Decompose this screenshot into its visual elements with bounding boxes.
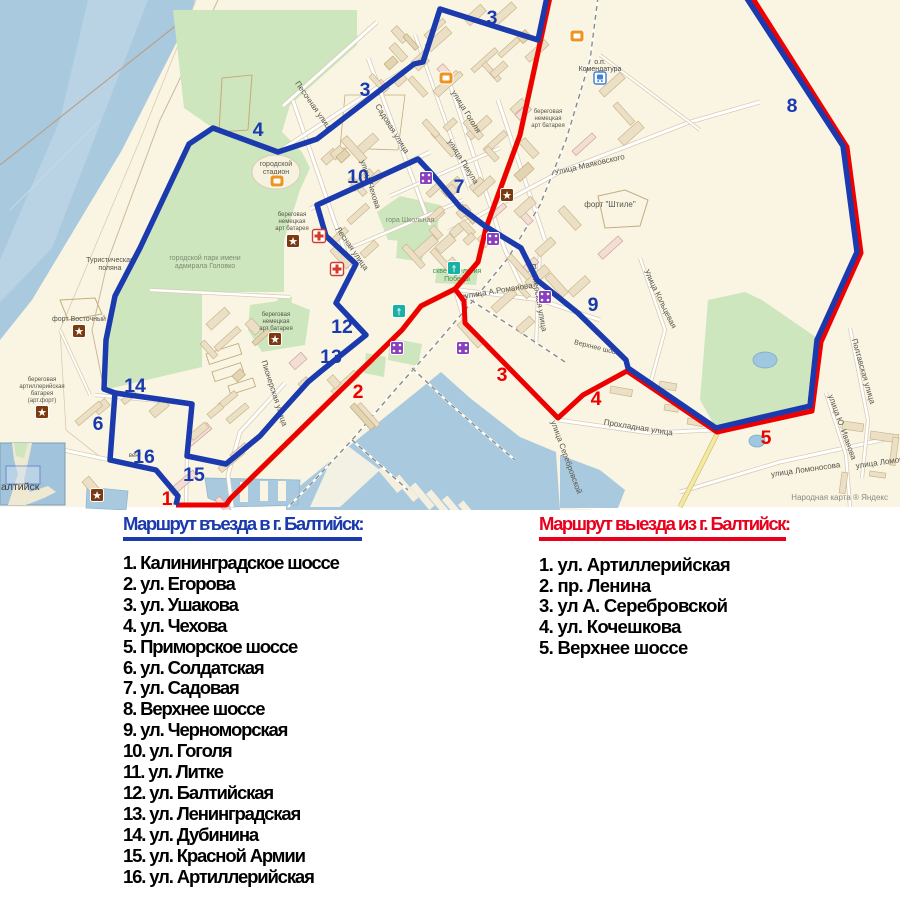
svg-text:(арт.форт): (арт.форт) xyxy=(28,398,57,404)
svg-text:4: 4 xyxy=(591,388,602,410)
svg-text:форт "Штиле": форт "Штиле" xyxy=(584,200,636,209)
svg-text:Народная карта ® Яндекс: Народная карта ® Яндекс xyxy=(791,493,888,502)
svg-text:†: † xyxy=(396,306,401,316)
svg-text:береговая: береговая xyxy=(278,212,306,218)
svg-text:городской парк имени: городской парк имени xyxy=(169,254,240,262)
svg-text:батарея: батарея xyxy=(31,391,53,397)
svg-text:немецкая: немецкая xyxy=(263,319,290,325)
svg-text:арт батарея: арт батарея xyxy=(259,326,292,332)
svg-text:★: ★ xyxy=(288,236,298,248)
svg-text:адмирала Головко: адмирала Головко xyxy=(175,263,235,270)
svg-text:арт батарея: арт батарея xyxy=(275,226,308,232)
svg-text:1: 1 xyxy=(162,488,173,510)
svg-text:о.п.: о.п. xyxy=(594,59,606,66)
svg-text:5: 5 xyxy=(761,427,772,449)
svg-text:немецкая: немецкая xyxy=(279,219,306,225)
svg-text:14: 14 xyxy=(124,375,146,397)
svg-text:6: 6 xyxy=(93,413,104,435)
svg-text:★: ★ xyxy=(502,190,512,202)
svg-text:9: 9 xyxy=(588,294,599,316)
svg-text:4: 4 xyxy=(253,119,264,141)
svg-text:★: ★ xyxy=(37,407,47,419)
svg-text:береговая: береговая xyxy=(262,312,290,318)
svg-text:★: ★ xyxy=(270,334,280,346)
svg-text:15: 15 xyxy=(183,464,205,486)
svg-text:★: ★ xyxy=(74,326,84,338)
svg-text:16: 16 xyxy=(133,446,155,468)
svg-text:береговая: береговая xyxy=(534,109,562,115)
svg-text:арт батарея: арт батарея xyxy=(531,123,564,129)
svg-text:немецкая: немецкая xyxy=(535,116,562,122)
svg-text:3: 3 xyxy=(497,364,508,386)
svg-text:13: 13 xyxy=(320,346,342,368)
svg-text:12: 12 xyxy=(331,316,353,338)
svg-text:гора Школьная: гора Школьная xyxy=(386,217,435,224)
svg-text:алтийск: алтийск xyxy=(1,481,40,493)
svg-text:поляна: поляна xyxy=(98,265,121,272)
svg-text:3: 3 xyxy=(487,7,498,29)
svg-text:†: † xyxy=(451,263,456,273)
svg-text:2: 2 xyxy=(353,381,364,403)
svg-text:10: 10 xyxy=(347,166,369,188)
svg-text:8: 8 xyxy=(787,95,798,117)
svg-text:Туристическая: Туристическая xyxy=(86,257,134,264)
svg-text:артиллерийская: артиллерийская xyxy=(19,383,64,390)
svg-text:★: ★ xyxy=(92,490,102,502)
svg-text:7: 7 xyxy=(454,176,465,198)
svg-text:береговая: береговая xyxy=(28,377,56,383)
svg-text:городской: городской xyxy=(260,160,293,168)
svg-text:3: 3 xyxy=(360,79,371,101)
svg-text:форт Восточный: форт Восточный xyxy=(52,315,106,323)
